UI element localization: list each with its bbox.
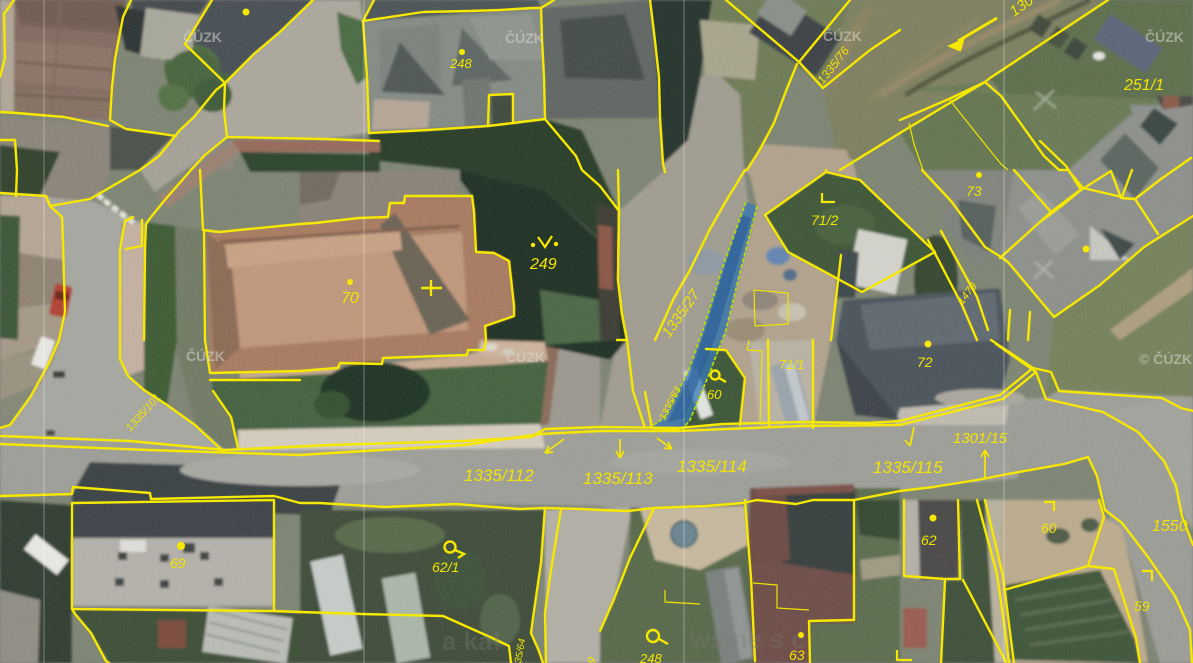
svg-text:ČÚZK: ČÚZK [186,347,225,364]
svg-text:71/2: 71/2 [811,212,838,228]
svg-text:248: 248 [639,651,662,663]
svg-text:62/1: 62/1 [432,559,459,575]
svg-text:249: 249 [529,256,557,273]
svg-text:73: 73 [966,183,982,199]
svg-text:wsme s c: wsme s c [689,624,806,654]
svg-text:1335/112: 1335/112 [464,466,534,485]
svg-text:71/1: 71/1 [779,357,804,372]
svg-text:70: 70 [341,290,359,307]
svg-text:1550: 1550 [1152,518,1188,535]
svg-text:60: 60 [707,387,722,402]
svg-text:62: 62 [921,532,937,548]
svg-text:59: 59 [1134,598,1150,614]
svg-text:1301/15: 1301/15 [953,430,1008,447]
svg-text:1335/115: 1335/115 [873,458,943,477]
svg-text:1335/114: 1335/114 [677,457,747,476]
svg-text:ČÚZK: ČÚZK [823,27,862,44]
svg-text:72: 72 [917,354,933,370]
svg-text:ČÚZK: ČÚZK [506,348,545,365]
svg-text:a ka!: a ka! [442,626,501,656]
svg-text:60: 60 [1041,520,1057,536]
svg-text:248: 248 [449,56,472,71]
svg-text:ČÚZK: ČÚZK [505,29,544,46]
svg-text:251/1: 251/1 [1123,77,1164,94]
svg-text:ČÚZK: ČÚZK [1145,28,1184,45]
svg-text:69: 69 [170,555,186,571]
svg-text:1335/113: 1335/113 [583,469,653,488]
svg-text:ČÚZK: ČÚZK [183,28,222,45]
svg-text:© ČÚZK: © ČÚZK [1139,350,1192,367]
